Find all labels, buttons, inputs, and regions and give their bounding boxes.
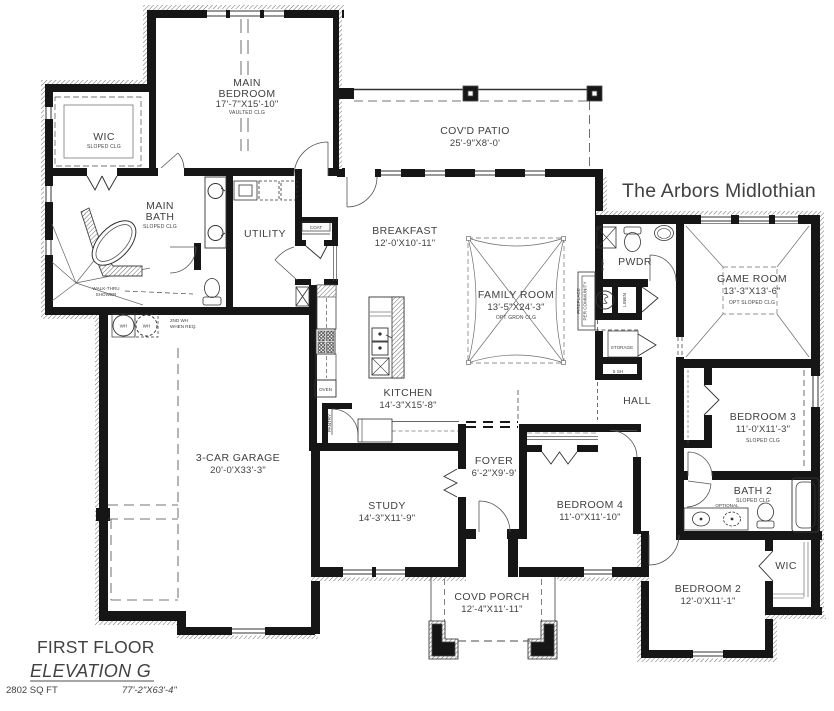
svg-text:6'-2"X9'-9': 6'-2"X9'-9' bbox=[472, 468, 517, 479]
svg-text:14'-3"X15'-8": 14'-3"X15'-8" bbox=[379, 400, 436, 411]
svg-text:FOYER: FOYER bbox=[475, 455, 513, 467]
svg-text:FAMILY ROOM: FAMILY ROOM bbox=[478, 289, 554, 301]
svg-text:5 SH: 5 SH bbox=[613, 369, 623, 374]
svg-text:WH: WH bbox=[143, 324, 151, 329]
svg-text:ELEVATION G: ELEVATION G bbox=[30, 661, 151, 681]
svg-text:SHOWER: SHOWER bbox=[96, 292, 117, 297]
svg-text:PWDR: PWDR bbox=[618, 256, 652, 268]
svg-text:77'-2"X63'-4": 77'-2"X63'-4" bbox=[122, 685, 177, 696]
svg-text:OPTIONAL: OPTIONAL bbox=[715, 503, 739, 508]
svg-text:BEDROOM 2: BEDROOM 2 bbox=[675, 583, 742, 595]
svg-text:BEDROOM 3: BEDROOM 3 bbox=[730, 411, 797, 423]
svg-text:FIRST FLOOR: FIRST FLOOR bbox=[37, 637, 155, 657]
svg-text:BREAKFAST: BREAKFAST bbox=[372, 225, 438, 237]
svg-text:FIREPLACE: FIREPLACE bbox=[576, 288, 581, 314]
svg-text:VAULTED CLG: VAULTED CLG bbox=[229, 110, 265, 116]
svg-text:20'-0'X33'-3": 20'-0'X33'-3" bbox=[210, 465, 266, 476]
svg-text:COV'D PATIO: COV'D PATIO bbox=[440, 125, 510, 137]
svg-text:OPT SLOPED CLG: OPT SLOPED CLG bbox=[729, 300, 775, 306]
svg-text:5' SH: 5' SH bbox=[600, 259, 605, 270]
svg-text:UTILITY: UTILITY bbox=[244, 228, 286, 240]
svg-text:OVEN: OVEN bbox=[319, 387, 332, 392]
svg-text:SLOPED CLG: SLOPED CLG bbox=[746, 438, 780, 444]
svg-text:PER COMMUNITY: PER COMMUNITY bbox=[583, 281, 588, 320]
svg-text:WALK-THRU: WALK-THRU bbox=[92, 286, 119, 291]
svg-text:WH: WH bbox=[120, 324, 128, 329]
svg-text:SLOPED CLG: SLOPED CLG bbox=[143, 224, 177, 230]
svg-text:17'-7"X15'-10": 17'-7"X15'-10" bbox=[216, 99, 279, 110]
svg-text:12'-0'X11'-1": 12'-0'X11'-1" bbox=[680, 596, 735, 607]
svg-text:OPT GRDN CLG: OPT GRDN CLG bbox=[496, 315, 536, 321]
svg-text:SLOPED CLG: SLOPED CLG bbox=[736, 498, 770, 504]
svg-text:PANTRY: PANTRY bbox=[327, 414, 332, 432]
svg-text:12'-4"X11'-11": 12'-4"X11'-11" bbox=[461, 604, 522, 615]
svg-text:GAME ROOM: GAME ROOM bbox=[717, 273, 787, 285]
svg-text:LINEN: LINEN bbox=[622, 293, 627, 307]
svg-text:WIC: WIC bbox=[775, 560, 797, 572]
svg-text:11'-0"X11'-10": 11'-0"X11'-10" bbox=[559, 512, 620, 523]
svg-text:13'-3"X13'-6": 13'-3"X13'-6" bbox=[723, 286, 780, 297]
svg-text:11'-0'X11'-3": 11'-0'X11'-3" bbox=[736, 424, 790, 435]
svg-text:STORAGE: STORAGE bbox=[611, 345, 633, 350]
svg-text:25'-9"X8'-0': 25'-9"X8'-0' bbox=[450, 138, 500, 149]
svg-text:The Arbors Midlothian: The Arbors Midlothian bbox=[622, 180, 816, 202]
svg-text:SLOPED CLG: SLOPED CLG bbox=[87, 144, 121, 150]
svg-text:COAT: COAT bbox=[310, 225, 323, 230]
svg-text:WIC: WIC bbox=[93, 131, 115, 143]
svg-text:BEDROOM 4: BEDROOM 4 bbox=[557, 499, 624, 511]
svg-text:3-CAR GARAGE: 3-CAR GARAGE bbox=[196, 452, 280, 464]
svg-text:STUDY: STUDY bbox=[368, 500, 406, 512]
svg-text:KITCHEN: KITCHEN bbox=[384, 387, 433, 399]
svg-text:BATH: BATH bbox=[146, 211, 175, 223]
svg-text:2802 SQ FT: 2802 SQ FT bbox=[6, 685, 58, 696]
svg-text:14'-3"X11'-9": 14'-3"X11'-9" bbox=[359, 513, 416, 524]
svg-text:12'-0'X10'-11": 12'-0'X10'-11" bbox=[375, 238, 436, 249]
svg-text:13'-5"X24'-3": 13'-5"X24'-3" bbox=[487, 302, 544, 313]
svg-text:COVD PORCH: COVD PORCH bbox=[454, 591, 529, 603]
svg-text:HALL: HALL bbox=[623, 395, 651, 407]
svg-text:WHEN REQ.: WHEN REQ. bbox=[170, 324, 197, 329]
svg-text:2ND WH: 2ND WH bbox=[170, 318, 188, 323]
svg-text:BATH 2: BATH 2 bbox=[734, 485, 772, 497]
